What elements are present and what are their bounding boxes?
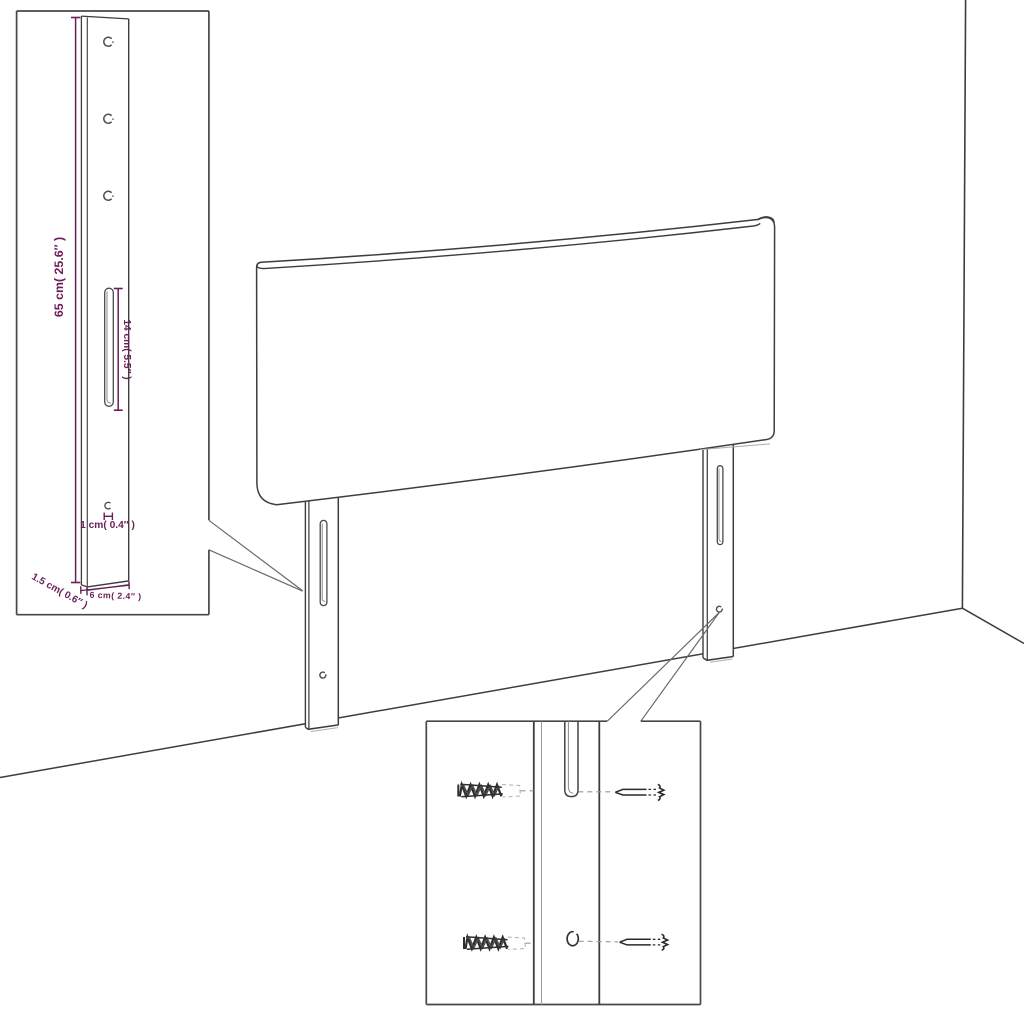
svg-text:14 cm( 5.5″ ): 14 cm( 5.5″ ) <box>121 319 132 379</box>
svg-text:6 cm( 2.4″ ): 6 cm( 2.4″ ) <box>89 590 141 602</box>
svg-text:1 cm( 0.4″ ): 1 cm( 0.4″ ) <box>80 520 135 531</box>
svg-text:65 cm( 25.6″ ): 65 cm( 25.6″ ) <box>52 237 66 317</box>
